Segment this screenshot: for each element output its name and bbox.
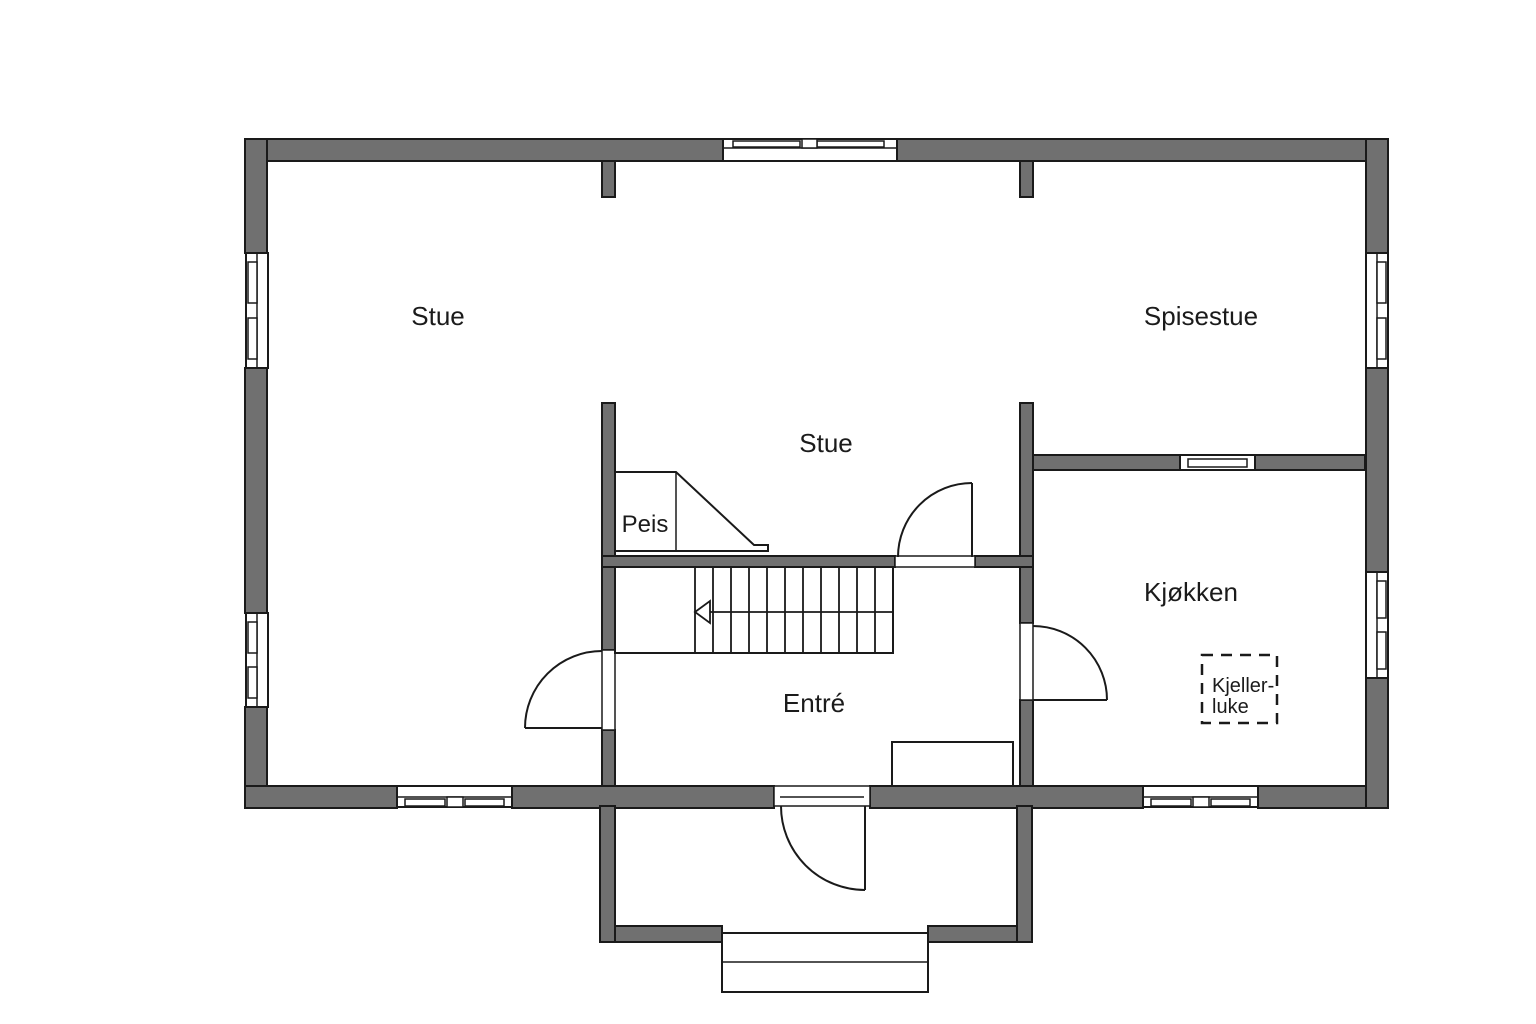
wall-bottom-1 xyxy=(245,786,397,808)
cellar-hatch-label-line2: luke xyxy=(1212,696,1249,718)
window-top-middle xyxy=(723,139,897,161)
opening-stue-middle xyxy=(895,556,975,567)
window-stue-left-lower xyxy=(246,613,268,707)
floor-plan-canvas: Stue Spisestue Stue Kjøkken Entré Peis K… xyxy=(0,0,1536,1024)
wall-right-upper xyxy=(1366,139,1388,253)
window-interior-divider xyxy=(1180,455,1255,470)
wall-top-left xyxy=(245,139,723,161)
wall-vertical-left-lower xyxy=(602,730,615,786)
porch xyxy=(600,806,1032,992)
wall-bottom-2 xyxy=(512,786,774,808)
door-stue-middle xyxy=(898,483,972,557)
window-kjokken-bottom xyxy=(1143,786,1258,807)
window-stue-bottom xyxy=(397,786,512,807)
labels: Stue Spisestue Stue Kjøkken Entré Peis K… xyxy=(411,301,1274,718)
floor-plan: Stue Spisestue Stue Kjøkken Entré Peis K… xyxy=(0,0,1536,1024)
door-front-entrance xyxy=(781,806,865,890)
wall-vertical-right-upper xyxy=(1020,403,1033,623)
wall-divider-right xyxy=(1255,455,1365,470)
wall-vertical-left-upper xyxy=(602,403,615,650)
opening-stue-entre xyxy=(602,650,615,730)
porch-wall-left xyxy=(600,806,615,942)
wall-top-right xyxy=(897,139,1388,161)
room-label-stue-left: Stue xyxy=(411,301,465,331)
door-swing-arc xyxy=(1033,626,1107,700)
cellar-hatch-label-line1: Kjeller- xyxy=(1212,675,1274,697)
porch-wall-bottom-left xyxy=(615,926,722,942)
wall-bottom-3 xyxy=(870,786,1143,808)
door-kjokken xyxy=(1033,626,1107,700)
window-spisestue xyxy=(1366,253,1388,368)
room-label-entre: Entré xyxy=(783,688,845,718)
wall-entre-top-right xyxy=(975,556,1033,567)
room-label-stue-middle: Stue xyxy=(799,428,853,458)
stub-top-right xyxy=(1020,161,1033,197)
opening-kjokken xyxy=(1020,623,1033,700)
wall-left-upper xyxy=(245,139,267,253)
wall-right-lower xyxy=(1366,678,1388,808)
door-stue-entre xyxy=(525,651,602,728)
opening-front-door xyxy=(774,786,870,806)
porch-wall-bottom-right xyxy=(928,926,1017,942)
wall-divider-left xyxy=(1033,455,1180,470)
door-swing-arc xyxy=(525,651,602,728)
wall-right-middle xyxy=(1366,368,1388,572)
window-kjokken-right xyxy=(1366,572,1388,678)
staircase xyxy=(615,567,893,653)
wall-entre-top-left xyxy=(602,556,895,567)
door-swing-arc xyxy=(781,806,865,890)
window-stue-left-upper xyxy=(246,253,268,368)
fireplace-label: Peis xyxy=(622,511,669,538)
room-label-kjokken: Kjøkken xyxy=(1144,577,1238,607)
porch-wall-right xyxy=(1017,806,1032,942)
door-swing-arc xyxy=(898,483,972,557)
entre-closet xyxy=(892,742,1013,786)
wall-left-middle xyxy=(245,368,267,613)
room-label-spisestue: Spisestue xyxy=(1144,301,1258,331)
stub-top-left xyxy=(602,161,615,197)
stair-outline xyxy=(615,567,893,653)
wall-vertical-right-lower xyxy=(1020,700,1033,786)
